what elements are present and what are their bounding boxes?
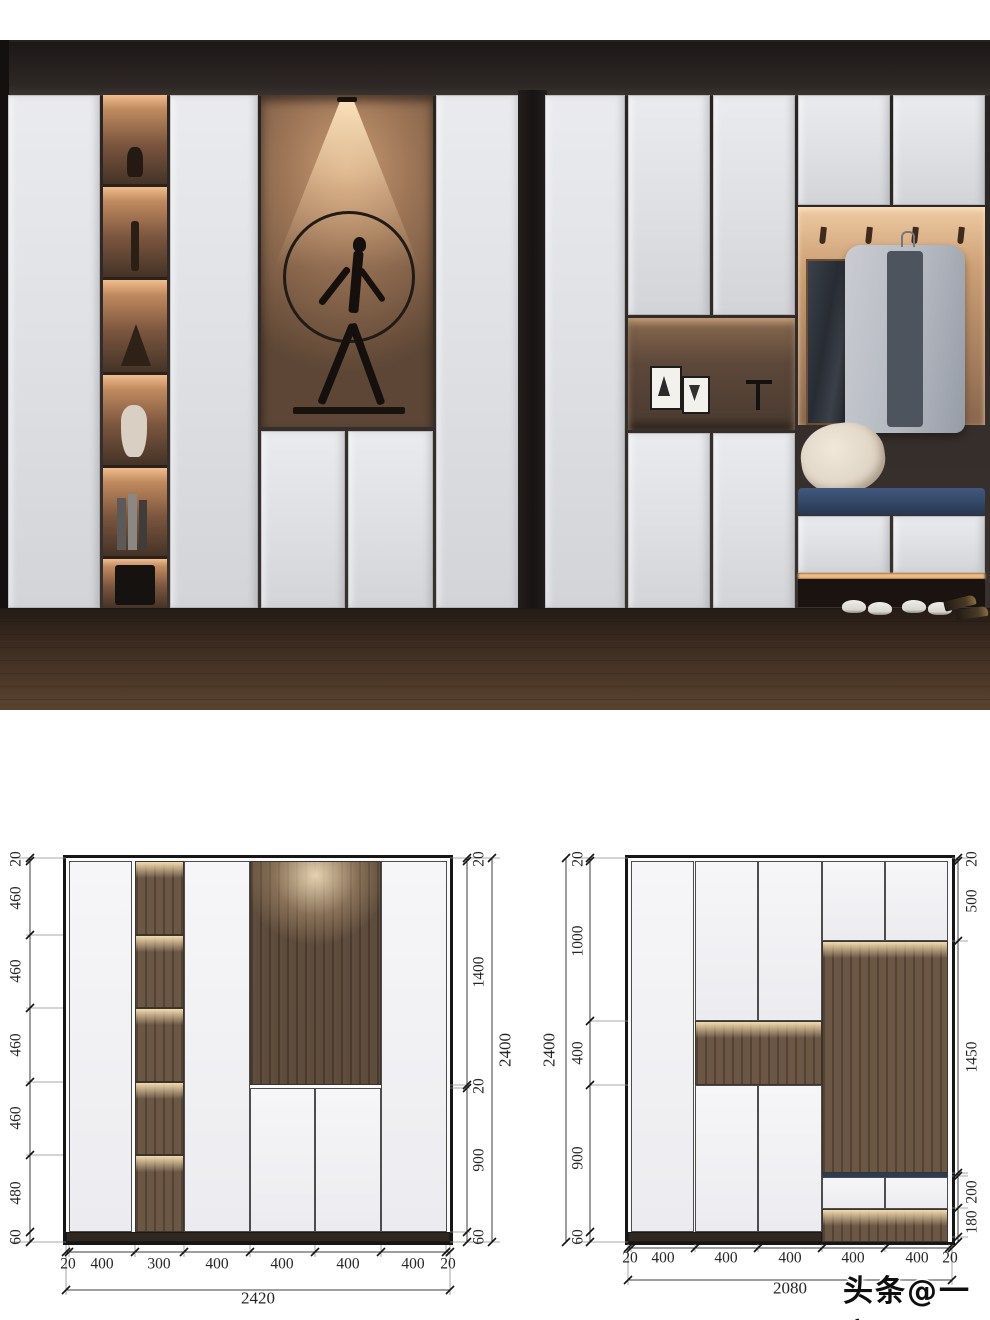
dim-label: 400 [570, 1041, 586, 1064]
coat-area-panel [822, 941, 948, 1173]
decor-white-vase [121, 405, 147, 457]
overall-width-label: 2080 [773, 1280, 807, 1297]
left-cabinet-door-1 [8, 95, 100, 608]
coat-hook [819, 227, 827, 245]
page: 20 460 460 460 460 480 60 20 1400 20 900… [0, 0, 990, 1320]
display-niche [261, 95, 433, 427]
niche-band [695, 1021, 822, 1085]
plinth [66, 1232, 450, 1242]
white-shoe [842, 600, 866, 613]
bench-cushion [798, 488, 985, 515]
shelf-compartment [103, 375, 167, 468]
picture-frame [682, 376, 710, 414]
decor-cone [121, 324, 151, 366]
bench-drawer-2 [893, 516, 985, 573]
panel-door [695, 1085, 758, 1232]
spotlight-fixture [337, 97, 357, 102]
shelf-niche [135, 861, 184, 935]
bench-drawer [885, 1177, 948, 1209]
overall-height-label: 2400 [497, 1033, 514, 1067]
top-cabinet-door [822, 861, 885, 941]
decor-book [128, 494, 137, 550]
sculpture-base [293, 407, 405, 414]
plinth [628, 1232, 822, 1242]
coat-inner-jacket [887, 251, 923, 427]
dim-label: 400 [90, 1256, 113, 1272]
shelf-niche [135, 1155, 184, 1232]
shelf-niche [135, 1008, 184, 1082]
left-cabinet-door-3 [436, 95, 520, 608]
picture-frame [650, 366, 682, 410]
decor-vase [127, 147, 143, 177]
dim-label: 20 [471, 851, 487, 867]
frame-art [689, 385, 700, 401]
white-shoe [902, 600, 926, 613]
dim-label: 460 [8, 886, 24, 909]
mirror-panel [806, 259, 850, 425]
ceiling-soffit [0, 42, 990, 96]
dim-label: 20 [471, 1078, 487, 1094]
shelf-niche [135, 1082, 184, 1155]
top-cabinet-door [885, 861, 948, 941]
panel-door [250, 1088, 315, 1232]
top-cabinet-door-2 [893, 95, 985, 205]
panel-door [758, 1085, 822, 1232]
sculpture-head [353, 237, 366, 252]
dim-label: 400 [778, 1250, 801, 1266]
dim-label: 900 [471, 1148, 487, 1171]
overall-width-label: 2420 [241, 1290, 275, 1307]
decor-book [117, 498, 126, 550]
hanging-coat [845, 245, 965, 433]
decor-book [139, 500, 147, 550]
overall-height-label: 2400 [541, 1033, 558, 1067]
left-cabinet [8, 95, 520, 608]
elevation-left-drawing [63, 855, 453, 1245]
dim-label: 20 [60, 1256, 76, 1272]
dim-label: 900 [570, 1146, 586, 1169]
panel-door [695, 861, 758, 1021]
dim-label: 20 [570, 851, 586, 867]
left-cabinet-lower-door-2 [348, 431, 433, 608]
watermark-toutiao: 头条@一室 [843, 1266, 990, 1320]
dim-label: 400 [905, 1250, 928, 1266]
bench-drawer [822, 1177, 885, 1209]
dim-label: 400 [841, 1250, 864, 1266]
dim-label: 460 [8, 1106, 24, 1129]
wall-gap-between-cabinets [518, 90, 547, 610]
left-cabinet-lower-door-1 [261, 431, 345, 608]
dim-label: 60 [8, 1229, 24, 1245]
dim-label: 60 [471, 1229, 487, 1245]
right-cabinet-door-1 [545, 95, 625, 608]
dim-label: 20 [8, 851, 24, 867]
dim-label: 20 [622, 1250, 638, 1266]
decor-bottle [131, 221, 139, 271]
hanger-hook [901, 231, 915, 247]
decor-lamp-stem [756, 382, 760, 410]
top-cabinet-door-1 [798, 95, 890, 205]
panel-door [184, 861, 250, 1232]
panel-door [631, 861, 694, 1232]
under-bench-band [822, 1209, 948, 1242]
dim-label: 480 [8, 1181, 24, 1204]
right-cabinet-tall-door-1 [628, 95, 710, 315]
dim-label: 400 [270, 1256, 293, 1272]
dim-label: 1000 [570, 926, 586, 957]
shelf-compartment [103, 280, 167, 375]
right-cabinet [545, 95, 985, 608]
panel-door [69, 861, 132, 1232]
shelf-niche [135, 935, 184, 1008]
mid-display-niche [628, 318, 795, 430]
panel-door [381, 861, 447, 1232]
panel-door [758, 861, 822, 1021]
dim-label: 400 [714, 1250, 737, 1266]
shelf-compartment [103, 95, 167, 187]
wood-floor [0, 608, 990, 710]
right-cabinet-lower-door-2 [713, 433, 795, 608]
dim-label: 400 [336, 1256, 359, 1272]
shelf-compartment [103, 559, 167, 608]
dim-label: 460 [8, 1033, 24, 1056]
render-photo [0, 40, 990, 710]
dim-label: 400 [205, 1256, 228, 1272]
dim-label: 60 [570, 1229, 586, 1245]
open-shelf-column [103, 95, 167, 608]
dim-label: 400 [401, 1256, 424, 1272]
dim-label: 20 [440, 1256, 456, 1272]
dim-label: 20 [942, 1250, 958, 1266]
dim-label: 1450 [964, 1042, 980, 1073]
coat-hook [957, 227, 965, 245]
display-niche-drawing [250, 861, 381, 1085]
decor-box [115, 565, 155, 605]
dim-label: 1400 [471, 957, 487, 988]
frame-art [658, 376, 670, 396]
dim-label: 180 [964, 1210, 980, 1233]
panel-door [315, 1088, 381, 1232]
dim-label: 400 [651, 1250, 674, 1266]
bench-drawer-1 [798, 516, 890, 573]
dim-label: 200 [964, 1180, 980, 1203]
right-cabinet-lower-door-1 [628, 433, 710, 608]
dim-label: 20 [964, 851, 980, 867]
right-cabinet-tall-door-2 [713, 95, 795, 315]
dim-label: 460 [8, 959, 24, 982]
dim-label: 300 [147, 1256, 170, 1272]
coat-hook [865, 227, 873, 245]
left-cabinet-door-2 [170, 95, 258, 608]
shelf-compartment [103, 468, 167, 559]
dim-label: 500 [964, 889, 980, 912]
elevation-right-drawing [625, 855, 955, 1245]
white-shoe [868, 602, 892, 615]
shelf-compartment [103, 187, 167, 280]
